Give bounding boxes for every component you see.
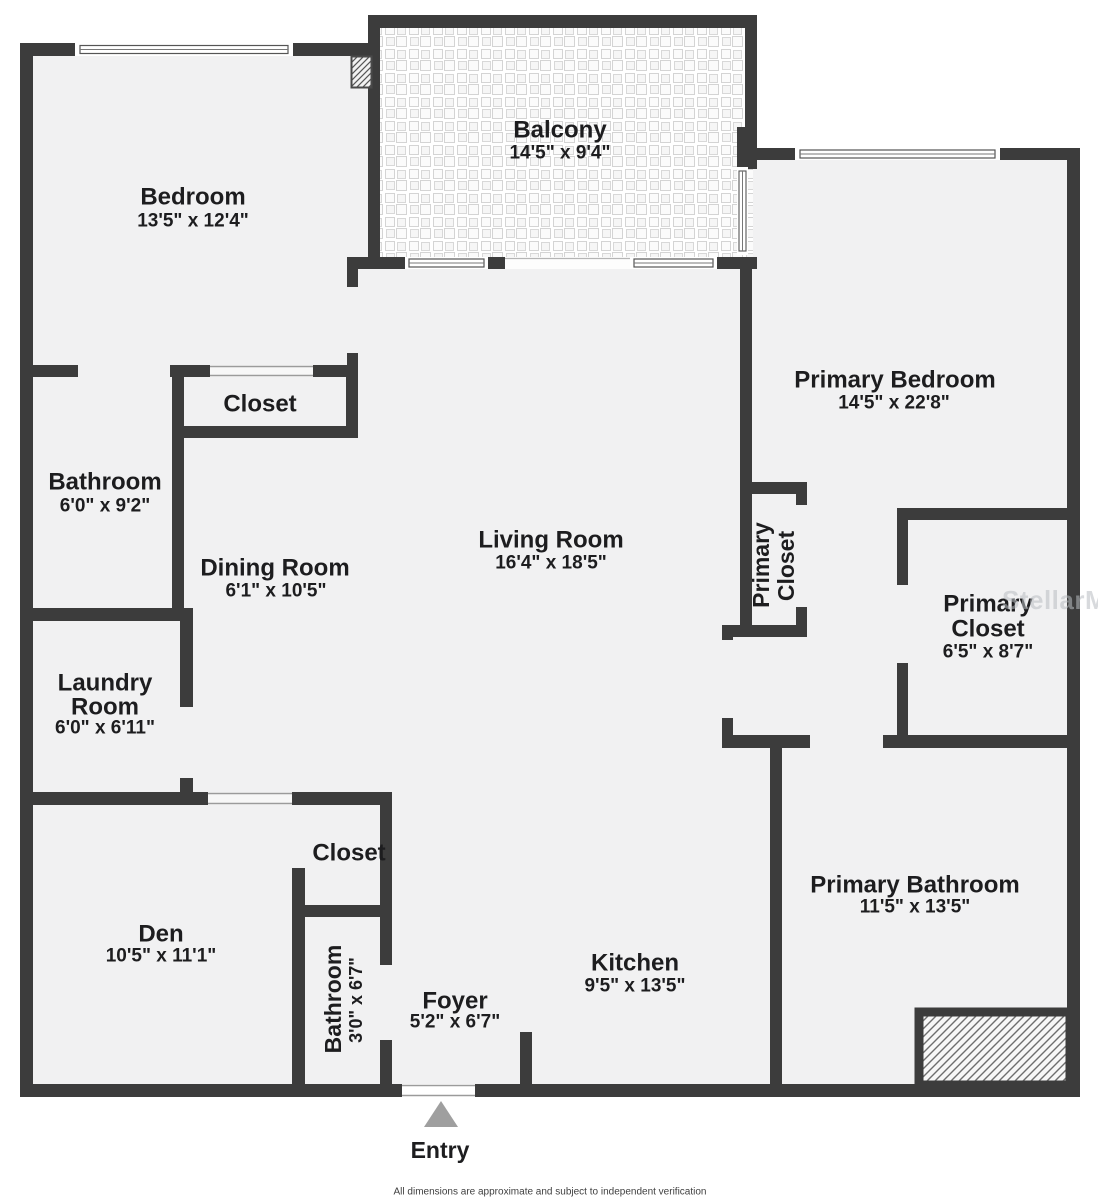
dining-room-label: Dining Room (200, 555, 349, 582)
primary-bathroom-dims: 11'5" x 13'5" (860, 897, 971, 918)
door-vestibule (722, 640, 733, 718)
wall-closet-lower-bottom (292, 905, 392, 917)
foyer-dims: 5'2" x 6'7" (410, 1012, 500, 1033)
foyer-label: Foyer (422, 988, 487, 1015)
entry-label: Entry (411, 1137, 470, 1163)
primary-closet-label-2: Closet (951, 616, 1024, 643)
kitchen-label: Kitchen (591, 950, 679, 977)
kitchen-dims: 9'5" x 13'5" (584, 976, 685, 997)
wall-kitchen-primarybath (770, 735, 782, 1084)
hatch-chase-top (352, 57, 372, 88)
door-bathroom-lower (380, 965, 392, 1040)
primary-closet-hall-label-2: Closet (773, 531, 799, 602)
wall-suite-divider (722, 735, 1080, 748)
primary-closet-dims: 6'5" x 8'7" (943, 642, 1033, 663)
primary-bedroom-label: Primary Bedroom (794, 367, 995, 394)
door-bathroom (78, 365, 170, 377)
wall-primarycloset-hall-bottom (722, 625, 807, 637)
disclaimer-text: All dimensions are approximate and subje… (394, 1187, 707, 1198)
bedroom-label: Bedroom (140, 184, 245, 211)
primary-closet-hall-label-1: Primary (748, 522, 774, 608)
bathroom-dims: 6'0" x 9'2" (60, 496, 150, 517)
balcony-dims: 14'5" x 9'4" (509, 143, 610, 164)
dining-room-dims: 6'1" x 10'5" (225, 581, 326, 602)
entry-arrow-icon (424, 1101, 458, 1127)
wall-foyer-stub (520, 1032, 532, 1084)
den-dims: 10'5" x 11'1" (106, 946, 217, 967)
wall-den-top (20, 792, 392, 805)
bathroom-lower-dims: 3'0" x 6'7" (346, 957, 366, 1043)
wall-balcony-top (368, 15, 757, 28)
door-primarycloset (897, 585, 908, 663)
laundry-room-dims: 6'0" x 6'11" (55, 718, 155, 739)
door-primary-bathroom (810, 735, 883, 748)
living-room-dims: 16'4" x 18'5" (495, 553, 607, 574)
wall-primarycloset-top (897, 508, 1080, 520)
laundry-room-label-2: Room (71, 694, 139, 721)
wall-balcony-right-upper (745, 15, 757, 145)
primary-bathroom-label: Primary Bathroom (810, 872, 1019, 899)
wall-bathroom-bottom (20, 608, 184, 621)
primary-bedroom-dims: 14'5" x 22'8" (838, 393, 950, 414)
hatch-closet-primary-bathroom (919, 1012, 1070, 1085)
wall-outer-right (1067, 148, 1080, 1097)
door-laundry (180, 707, 193, 778)
laundry-room-label-1: Laundry (58, 670, 153, 697)
living-room-label: Living Room (478, 527, 623, 554)
wall-outer-left (20, 43, 33, 1097)
wall-balcony-left (368, 15, 380, 257)
bathroom-label: Bathroom (48, 469, 161, 496)
wall-closet-upper-bottom (184, 426, 358, 438)
floor-plan-canvas: Bedroom 13'5" x 12'4" Balcony 14'5" x 9'… (0, 0, 1098, 1200)
den-label: Den (138, 921, 183, 948)
door-closet-lower (292, 805, 305, 868)
closet-lower-label: Closet (312, 840, 385, 867)
floor-primary-bedroom (737, 148, 1080, 268)
door-bedroom (347, 287, 358, 353)
closet-upper-label: Closet (223, 391, 296, 418)
wall-bathroom-right (172, 365, 184, 612)
floor-plan-page: Bedroom 13'5" x 12'4" Balcony 14'5" x 9'… (0, 0, 1098, 1200)
bathroom-lower-label: Bathroom (320, 945, 346, 1054)
wall-bathroom-lower-right (380, 792, 392, 1084)
bedroom-dims: 13'5" x 12'4" (137, 211, 249, 232)
entry-marker: Entry (411, 1101, 470, 1163)
stellar-mls-watermark: StellarMLS (1002, 585, 1098, 615)
balcony-label: Balcony (513, 117, 607, 144)
